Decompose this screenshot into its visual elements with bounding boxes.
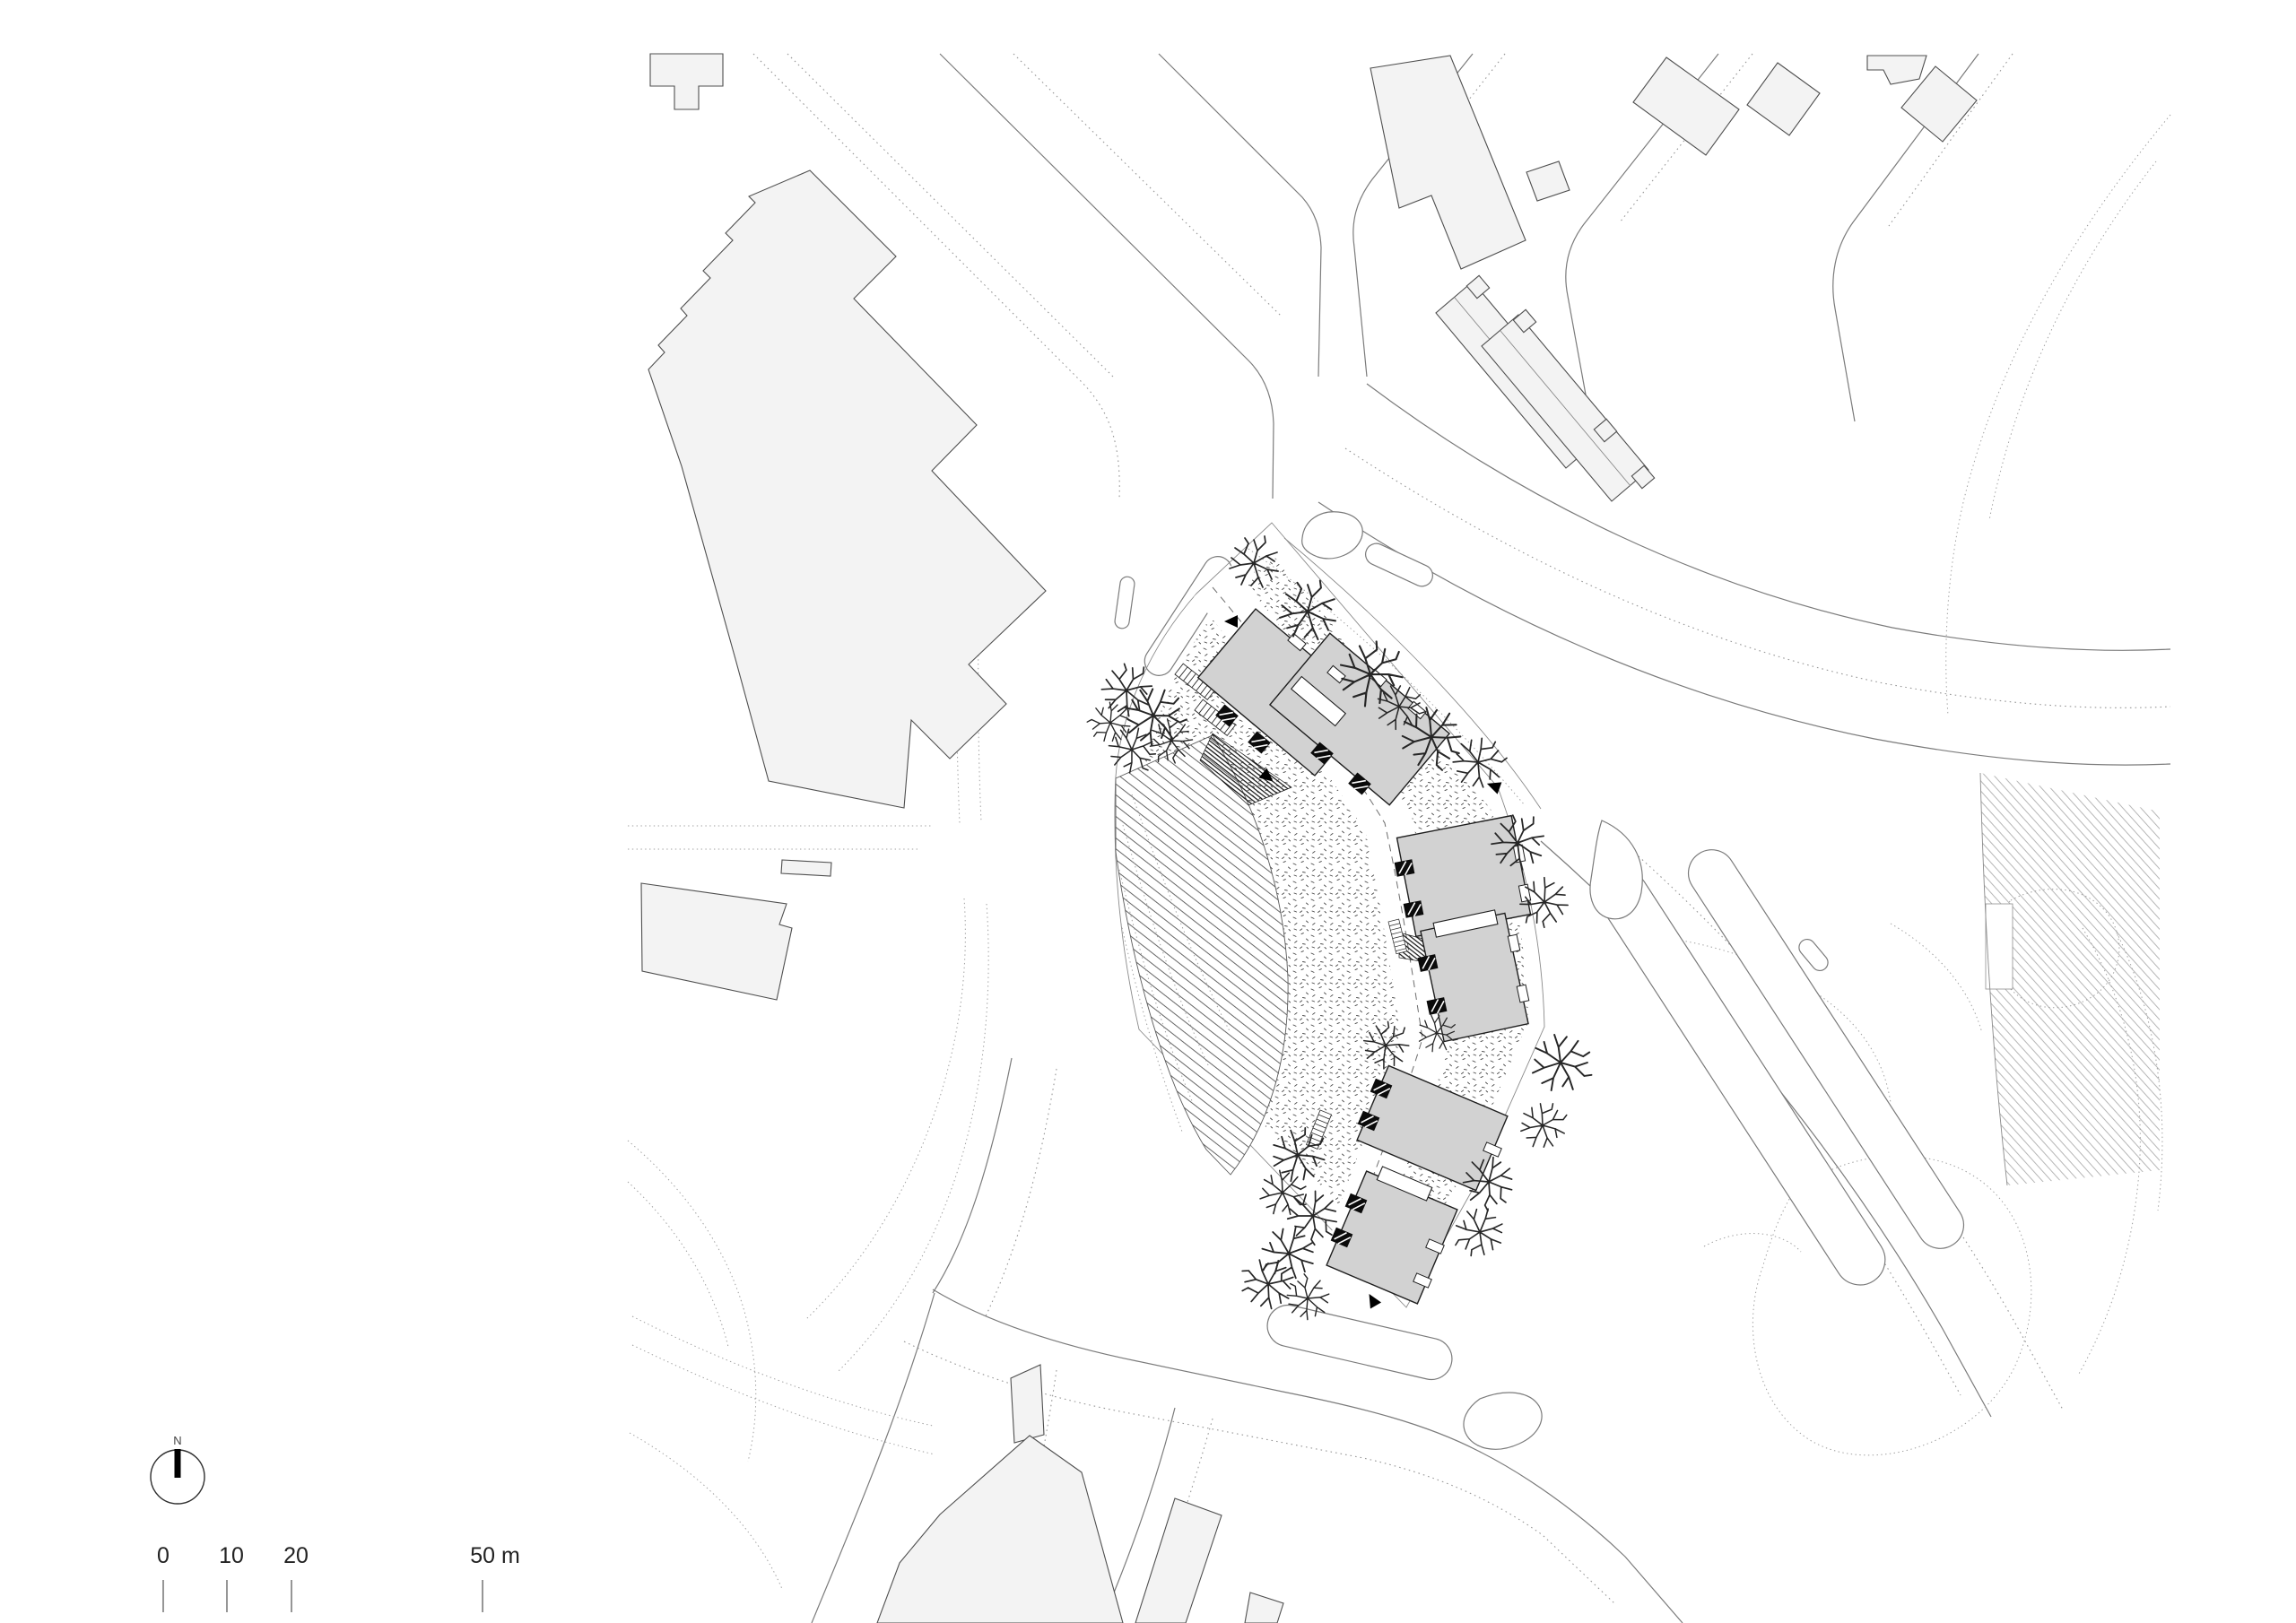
island-teardrop-north <box>1302 512 1363 559</box>
context-building-north-square1 <box>1747 63 1820 135</box>
scale-bar: 0 10 20 50 m <box>157 1543 520 1612</box>
north-label: N <box>173 1434 181 1447</box>
scale-label-50m: 50 m <box>470 1543 520 1568</box>
tree-icon <box>1252 1219 1325 1292</box>
context-building-top-center-annex <box>1526 161 1570 201</box>
tree-icon <box>1259 1169 1309 1217</box>
context-building-large-northwest <box>648 170 1046 808</box>
scale-ticks <box>163 1580 483 1612</box>
context-building-top-center <box>1370 56 1526 269</box>
scale-label-0: 0 <box>157 1543 170 1568</box>
context-buildings-bottom <box>877 1365 1283 1623</box>
context-building-top-left-corner <box>650 54 723 109</box>
plan-sheet: N 0 10 20 50 m <box>0 0 2296 1623</box>
tree-icon <box>1512 1093 1576 1157</box>
scale-label-20: 20 <box>283 1543 309 1568</box>
north-arrow: N <box>151 1434 204 1504</box>
context-annex-west <box>781 860 831 876</box>
context-building-top-edge-fragment <box>1867 56 1926 84</box>
scale-label-10: 10 <box>219 1543 244 1568</box>
island-south-pill <box>1264 1301 1457 1384</box>
entrance-arrow-icon <box>1363 1291 1381 1309</box>
tree-icon <box>1239 1257 1294 1310</box>
site-plan-drawing: N 0 10 20 50 m <box>0 0 2296 1623</box>
context-slabs-northeast <box>1436 275 1655 501</box>
context-building-west-slab <box>641 883 792 1000</box>
tree-icon <box>1533 1035 1592 1090</box>
context-building-north-slab <box>1633 57 1739 155</box>
north-needle-icon <box>175 1449 181 1478</box>
hatched-slope-east <box>1980 773 2160 1185</box>
